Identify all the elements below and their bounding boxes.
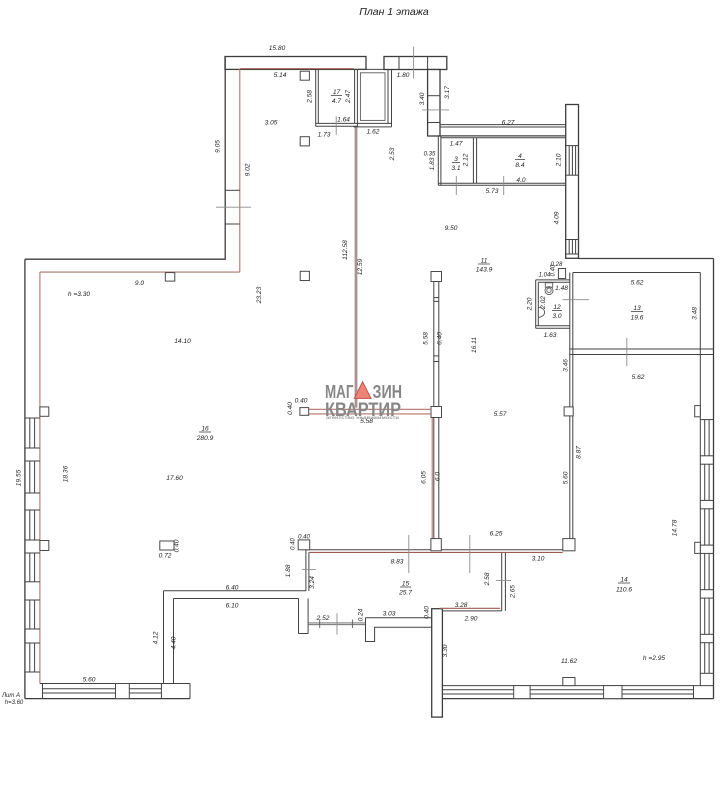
svg-text:1.47: 1.47 [450, 141, 463, 148]
svg-text:3.10: 3.10 [532, 556, 545, 563]
svg-text:4.40: 4.40 [171, 636, 178, 649]
svg-text:18.36: 18.36 [63, 465, 70, 482]
svg-text:13: 13 [633, 305, 641, 312]
svg-text:1.62: 1.62 [367, 129, 380, 136]
svg-text:0.40: 0.40 [295, 398, 308, 405]
svg-text:0.40: 0.40 [174, 539, 181, 552]
svg-text:6.27: 6.27 [502, 120, 515, 127]
svg-text:3.30: 3.30 [442, 644, 449, 657]
svg-text:4.0: 4.0 [516, 177, 525, 184]
svg-text:h =2.95: h =2.95 [643, 655, 666, 662]
svg-text:h=3.60: h=3.60 [5, 700, 24, 706]
svg-text:1.64: 1.64 [337, 117, 350, 124]
svg-text:6.40: 6.40 [437, 332, 444, 345]
svg-text:3.24: 3.24 [309, 576, 316, 589]
svg-text:9.0: 9.0 [135, 280, 144, 287]
svg-text:2.47: 2.47 [345, 90, 352, 104]
svg-text:1.88: 1.88 [285, 564, 292, 577]
svg-text:3.28: 3.28 [455, 602, 468, 609]
svg-text:14.10: 14.10 [174, 338, 191, 345]
svg-text:6.40: 6.40 [226, 585, 239, 592]
svg-text:3.05: 3.05 [265, 120, 278, 127]
svg-text:0.24: 0.24 [358, 608, 365, 621]
svg-text:4.12: 4.12 [153, 631, 160, 644]
svg-text:6.05: 6.05 [421, 471, 428, 484]
svg-text:3.0: 3.0 [552, 313, 561, 320]
svg-text:5.62: 5.62 [632, 374, 645, 381]
svg-text:1.73: 1.73 [318, 132, 331, 139]
svg-text:14: 14 [620, 577, 628, 584]
svg-text:2.52: 2.52 [316, 615, 330, 622]
svg-text:12.59: 12.59 [357, 258, 364, 275]
svg-text:17: 17 [333, 89, 341, 96]
svg-text:План 1 этажа: План 1 этажа [359, 6, 429, 18]
svg-text:2.12: 2.12 [463, 153, 470, 167]
svg-text:143.9: 143.9 [476, 267, 493, 274]
svg-text:2.02: 2.02 [540, 296, 547, 310]
svg-text:6.0: 6.0 [435, 472, 442, 481]
svg-text:5.62: 5.62 [631, 280, 644, 287]
svg-text:8.87: 8.87 [576, 446, 583, 459]
svg-text:110.6: 110.6 [616, 587, 632, 594]
svg-text:8.83: 8.83 [391, 559, 404, 566]
svg-text:1.63: 1.63 [544, 332, 557, 339]
svg-text:3.1: 3.1 [451, 165, 460, 172]
svg-text:6.10: 6.10 [226, 603, 239, 610]
svg-text:0.40: 0.40 [291, 538, 297, 550]
svg-text:0.40: 0.40 [424, 606, 431, 619]
svg-text:3.40: 3.40 [419, 92, 426, 105]
svg-text:Лит А: Лит А [1, 693, 20, 699]
svg-text:12: 12 [553, 304, 561, 311]
svg-text:3.46: 3.46 [563, 359, 570, 372]
svg-text:4.09: 4.09 [554, 211, 561, 224]
svg-text:0.35: 0.35 [424, 152, 436, 158]
svg-text:9.05: 9.05 [215, 140, 222, 153]
svg-text:25.7: 25.7 [398, 590, 412, 597]
svg-text:2.90: 2.90 [464, 616, 478, 623]
svg-text:2.20: 2.20 [527, 297, 534, 311]
svg-text:19.55: 19.55 [16, 469, 23, 486]
svg-text:5.73: 5.73 [486, 188, 499, 195]
svg-text:0.40: 0.40 [287, 402, 294, 415]
svg-text:4: 4 [518, 153, 522, 160]
svg-text:3.03: 3.03 [383, 611, 396, 618]
svg-text:5.60: 5.60 [563, 471, 570, 484]
svg-text:агентство недвижимости: агентство недвижимости [326, 415, 399, 420]
svg-text:14.78: 14.78 [672, 519, 679, 536]
svg-text:2.58: 2.58 [484, 572, 491, 586]
svg-text:3: 3 [454, 156, 458, 163]
svg-text:6.25: 6.25 [490, 531, 503, 538]
svg-text:5.58: 5.58 [423, 332, 430, 345]
svg-text:h =3.30: h =3.30 [68, 291, 91, 298]
svg-text:15.80: 15.80 [269, 45, 286, 52]
svg-text:0.72: 0.72 [159, 553, 172, 560]
svg-text:17.60: 17.60 [166, 475, 183, 482]
svg-text:3.48: 3.48 [692, 307, 699, 320]
svg-text:8.4: 8.4 [515, 162, 524, 169]
svg-text:4.7: 4.7 [332, 98, 341, 105]
svg-text:5.14: 5.14 [274, 72, 287, 79]
svg-text:5.60: 5.60 [83, 677, 96, 684]
svg-text:11.62: 11.62 [561, 658, 577, 665]
svg-text:9.50: 9.50 [445, 225, 458, 232]
svg-text:112.58: 112.58 [342, 240, 349, 260]
svg-text:19.6: 19.6 [631, 315, 644, 322]
svg-text:16.11: 16.11 [471, 337, 478, 353]
svg-text:5.57: 5.57 [494, 411, 507, 418]
svg-text:2.10: 2.10 [556, 153, 563, 167]
svg-text:0.40: 0.40 [551, 264, 557, 276]
svg-text:16: 16 [201, 426, 209, 433]
svg-text:1.80: 1.80 [397, 72, 410, 79]
svg-text:9.02: 9.02 [245, 163, 252, 176]
svg-text:23.23: 23.23 [256, 286, 263, 304]
svg-text:1.48: 1.48 [555, 285, 568, 292]
svg-text:1.83: 1.83 [429, 157, 436, 170]
svg-text:280.9: 280.9 [196, 435, 214, 442]
svg-text:0.40: 0.40 [298, 535, 310, 541]
svg-text:11: 11 [481, 258, 488, 265]
svg-text:1.04: 1.04 [539, 273, 551, 279]
svg-text:15: 15 [402, 581, 410, 588]
svg-text:2.65: 2.65 [510, 585, 517, 599]
svg-text:2.53: 2.53 [389, 147, 396, 161]
svg-text:3.17: 3.17 [444, 86, 451, 99]
svg-text:2.58: 2.58 [307, 90, 314, 104]
